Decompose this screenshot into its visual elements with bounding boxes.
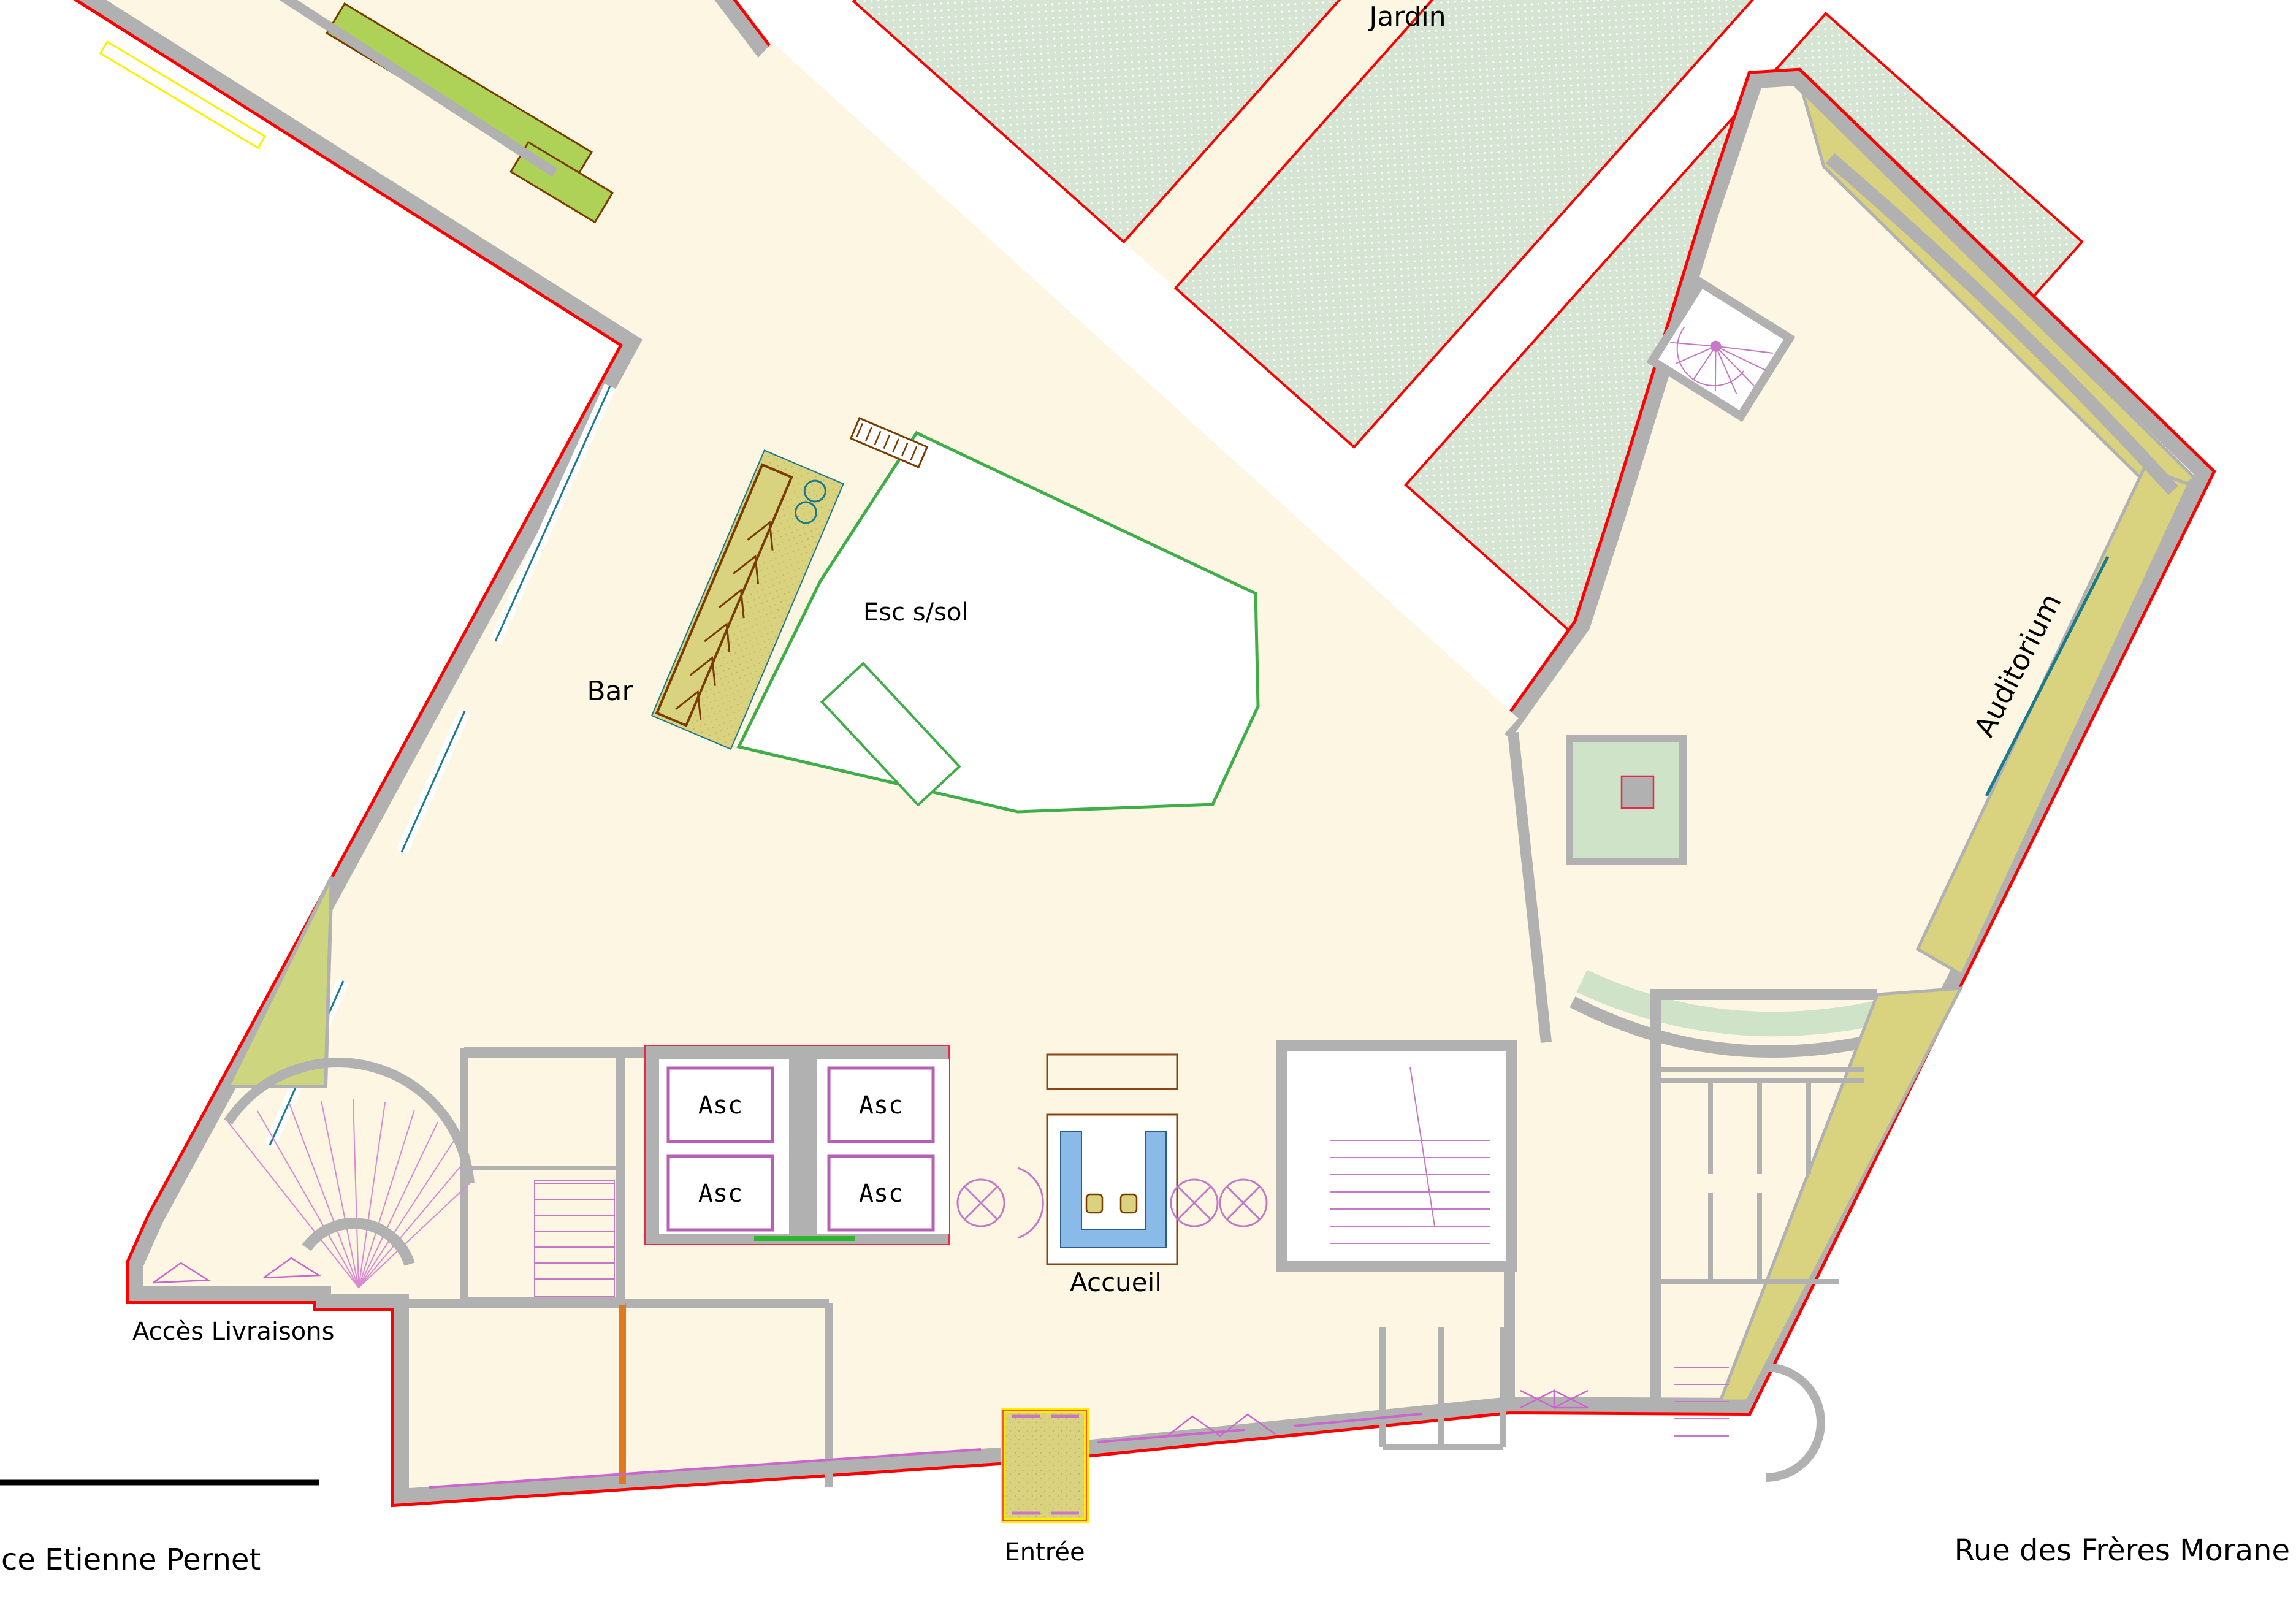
accueil-chair	[1121, 1194, 1137, 1213]
esc-ssol-label: Esc s/sol	[863, 598, 969, 627]
street-label-left: ce Etienne Pernet	[1, 1543, 261, 1577]
entrance-vestibule	[1003, 1410, 1086, 1521]
elevator-label: Asc	[698, 1180, 742, 1208]
elevator-label: Asc	[698, 1091, 742, 1120]
elevator-label: Asc	[859, 1091, 903, 1120]
accueil-label: Accueil	[1070, 1267, 1162, 1297]
stair-east-block	[1281, 1045, 1511, 1266]
planter-triangle	[228, 877, 332, 1086]
bar-label: Bar	[587, 676, 633, 707]
column	[1622, 776, 1653, 808]
jardin-label: Jardin	[1367, 1, 1446, 32]
street-label-right: Rue des Frères Morane	[1955, 1533, 2290, 1568]
floor-plan-canvas: Auditorium Asc Asc Asc	[0, 0, 2296, 1599]
elevator-label: Asc	[859, 1180, 903, 1208]
accueil-sign	[1047, 1055, 1177, 1089]
entrance-zone: Entrée	[1003, 1410, 1086, 1567]
accueil-chair	[1086, 1194, 1102, 1213]
elevator-block: Asc Asc Asc Asc	[645, 1045, 949, 1245]
entrance-label: Entrée	[1004, 1538, 1085, 1567]
delivery-label: Accès Livraisons	[132, 1318, 334, 1346]
floor-plan-page: Auditorium Asc Asc Asc	[0, 0, 2296, 1599]
